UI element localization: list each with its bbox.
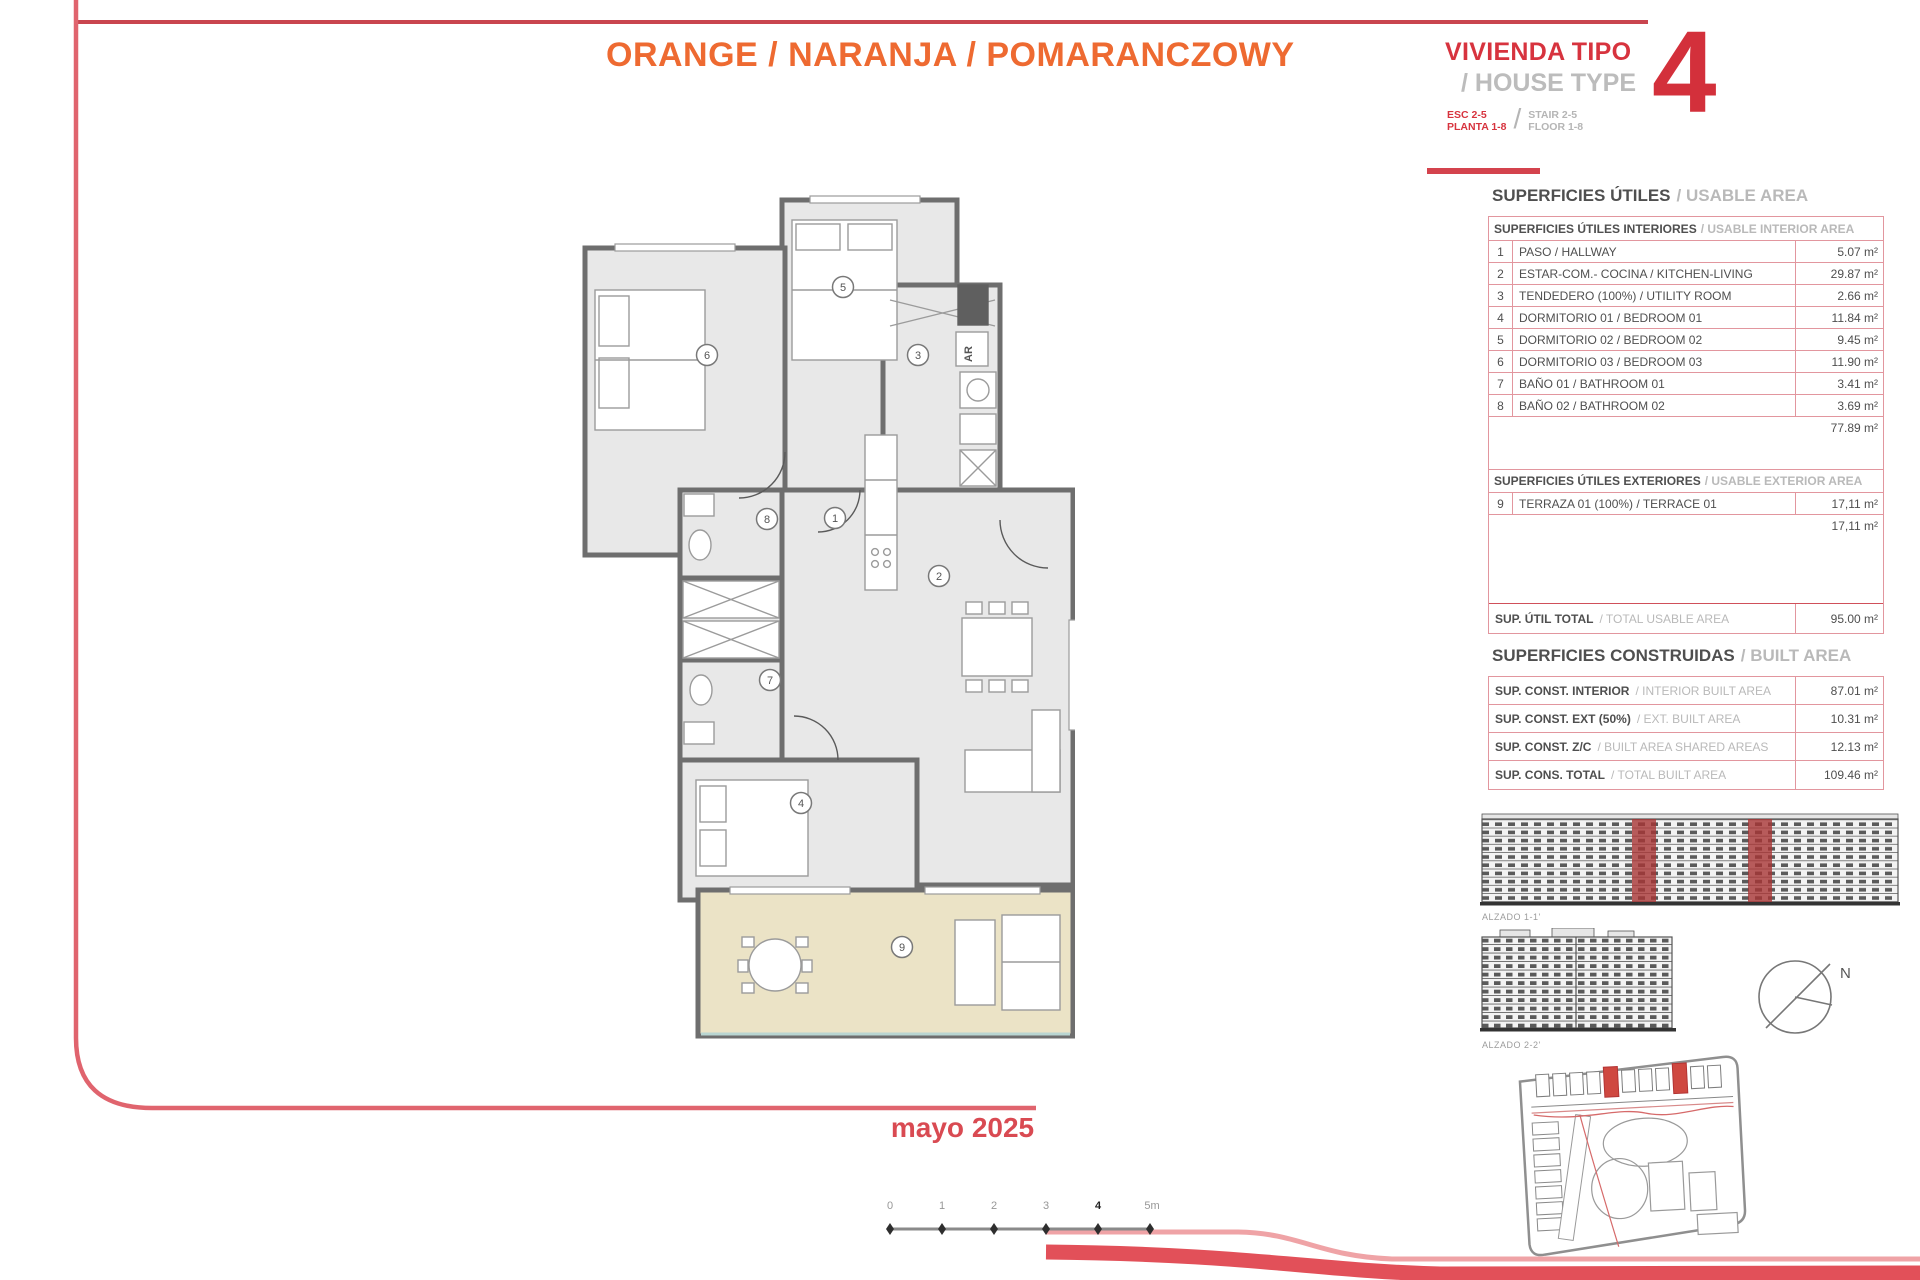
built-area-heading: SUPERFICIES CONSTRUIDAS/ BUILT AREA [1492, 646, 1851, 666]
compass-north-label: N [1840, 965, 1851, 982]
table-row: 9TERRAZA 01 (100%) / TERRACE 0117,11 m² [1489, 493, 1883, 515]
house-type-number: 4 [1652, 14, 1717, 130]
room-number-1: 1 [832, 513, 838, 525]
bed-bedroom-03 [595, 290, 705, 430]
scale-label-4: 4 [1095, 1200, 1101, 1212]
highlighted-unit [1603, 1067, 1619, 1098]
room-number-2: 2 [936, 571, 942, 583]
house-type-es: VIVIENDA TIPO [1445, 38, 1645, 67]
table-row: 5DORMITORIO 02 / BEDROOM 029.45 m² [1489, 329, 1883, 351]
table-row: SUP. CONST. INTERIOR/ INTERIOR BUILT ARE… [1489, 677, 1883, 705]
slash-divider: / [1514, 103, 1522, 135]
scale-label-2: 2 [991, 1200, 997, 1212]
usable-total-row: SUP. ÚTIL TOTAL/ TOTAL USABLE AREA 95.00… [1489, 603, 1883, 633]
esc-planta: ESC 2-5 PLANTA 1-8 [1447, 109, 1507, 133]
scale-label-3: 3 [1043, 1200, 1049, 1212]
table-row: 2ESTAR-COM.- COCINA / KITCHEN-LIVING29.8… [1489, 263, 1883, 285]
table-row: 8BAÑO 02 / BATHROOM 023.69 m² [1489, 395, 1883, 417]
room-number-9: 9 [899, 942, 905, 954]
exterior-subtotal: 17,11 m² [1489, 515, 1883, 537]
room-number-7: 7 [767, 675, 773, 687]
table-row: SUP. CONST. Z/C/ BUILT AREA SHARED AREAS… [1489, 733, 1883, 761]
stair-floor: STAIR 2-5 FLOOR 1-8 [1528, 109, 1583, 133]
elevation-1-drawing [1480, 812, 1900, 908]
room-number-4: 4 [798, 798, 804, 810]
usable-total-value: 95.00 m² [1795, 604, 1883, 633]
floor-plan-sheet: ORANGE / NARANJA / POMARANCZOWY VIVIENDA… [0, 0, 1920, 1280]
scale-label-5m: 5m [1144, 1200, 1159, 1212]
interior-section-header: SUPERFICIES ÚTILES INTERIORES / USABLE I… [1489, 217, 1883, 241]
table-row: 6DORMITORIO 03 / BEDROOM 0311.90 m² [1489, 351, 1883, 373]
built-area-table: SUP. CONST. INTERIOR/ INTERIOR BUILT ARE… [1488, 676, 1884, 790]
compass: N [1752, 952, 1862, 1042]
usable-area-heading-en: / USABLE AREA [1677, 186, 1809, 205]
house-type-en: / HOUSE TYPE [1461, 69, 1645, 98]
table-row: 7BAÑO 01 / BATHROOM 013.41 m² [1489, 373, 1883, 395]
house-type-block: VIVIENDA TIPO / HOUSE TYPE ESC 2-5 PLANT… [1445, 38, 1645, 137]
table-row: 4DORMITORIO 01 / BEDROOM 0111.84 m² [1489, 307, 1883, 329]
scale-label-0: 0 [887, 1200, 893, 1212]
stair-floor-info: ESC 2-5 PLANTA 1-8 / STAIR 2-5 FLOOR 1-8 [1447, 105, 1645, 137]
compass-cross [1795, 997, 1832, 1005]
room-number-5: 5 [840, 282, 846, 294]
usable-area-table: SUPERFICIES ÚTILES INTERIORES / USABLE I… [1488, 216, 1884, 634]
table-row: SUP. CONST. EXT (50%)/ EXT. BUILT AREA10… [1489, 705, 1883, 733]
compass-needle [1766, 964, 1830, 1028]
elevation-1-label: ALZADO 1-1' [1482, 912, 1541, 922]
room-number-3: 3 [915, 350, 921, 362]
bed-bedroom-01 [696, 780, 808, 876]
site-plan-drawing [1496, 1048, 1764, 1264]
highlighted-unit [1672, 1063, 1688, 1094]
exterior-section-header: SUPERFICIES ÚTILES EXTERIORES / USABLE E… [1489, 469, 1883, 493]
usable-area-heading: SUPERFICIES ÚTILES/ USABLE AREA [1492, 186, 1808, 206]
page-title: ORANGE / NARANJA / POMARANCZOWY [606, 36, 1295, 75]
floor-plan-drawing: AR 1 2 3 4 5 6 7 8 9 [570, 190, 1075, 1045]
scale-label-1: 1 [939, 1200, 945, 1212]
room-number-6: 6 [704, 350, 710, 362]
built-area-heading-es: SUPERFICIES CONSTRUIDAS [1492, 646, 1735, 665]
room-number-8: 8 [764, 514, 770, 526]
kitchen-counter [865, 435, 897, 590]
usable-area-heading-es: SUPERFICIES ÚTILES [1492, 186, 1671, 205]
table-row: 1PASO / HALLWAY5.07 m² [1489, 241, 1883, 263]
interior-subtotal: 77.89 m² [1489, 417, 1883, 439]
spacer [1489, 439, 1883, 469]
elevation-2-drawing [1480, 928, 1676, 1034]
built-area-heading-en: / BUILT AREA [1741, 646, 1852, 665]
date-label: mayo 2025 [860, 1112, 1065, 1144]
bottom-wave-thick [1046, 1252, 1920, 1274]
spacer [1489, 537, 1883, 603]
closet-ar-label: AR [963, 346, 975, 362]
table-row: SUP. CONS. TOTAL/ TOTAL BUILT AREA109.46… [1489, 761, 1883, 789]
table-row: 3TENDEDERO (100%) / UTILITY ROOM2.66 m² [1489, 285, 1883, 307]
